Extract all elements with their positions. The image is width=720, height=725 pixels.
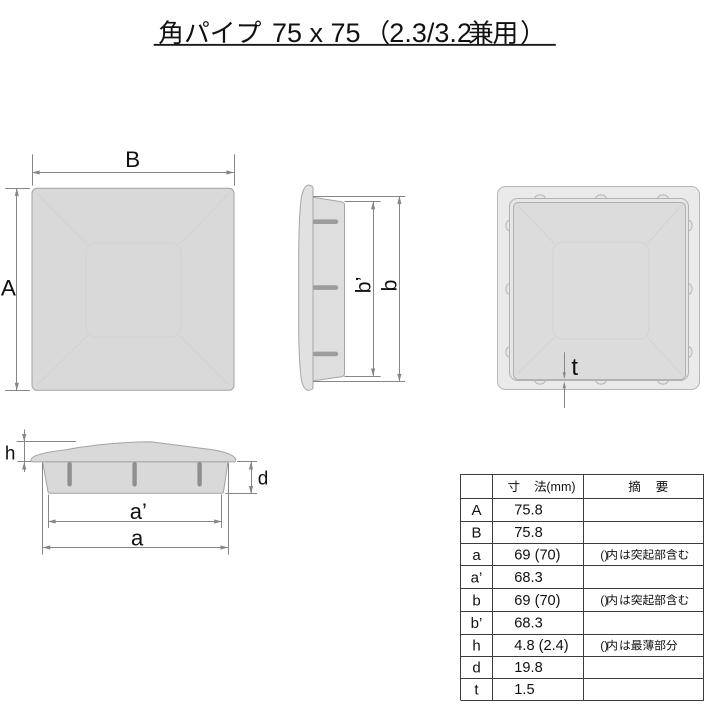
svg-text:68.3: 68.3 [514,616,542,632]
svg-text:69 (70): 69 (70) [514,548,560,564]
svg-text:a’: a’ [130,499,147,524]
svg-text:b: b [378,279,402,291]
svg-text:2.3/3.2: 2.3/3.2 [389,18,472,48]
svg-text:(): () [600,548,608,562]
svg-text:a: a [131,526,144,551]
svg-text:(): () [600,639,608,653]
svg-text:(): () [600,593,608,607]
svg-text:68.3: 68.3 [514,570,542,586]
svg-text:B: B [125,147,140,172]
svg-text:1.5: 1.5 [514,682,534,698]
svg-text:t: t [571,354,578,381]
svg-text:69 (70): 69 (70) [514,593,560,609]
svg-text:75 x 75: 75 x 75 [272,18,361,48]
svg-text:19.8: 19.8 [514,660,542,676]
svg-text:B: B [471,525,481,542]
svg-text:b: b [472,592,480,609]
svg-text:4.8 (2.4): 4.8 (2.4) [514,638,568,654]
svg-text:a: a [472,547,481,564]
svg-text:75.8: 75.8 [514,503,542,519]
svg-text:(mm): (mm) [546,480,575,494]
svg-text:b’: b’ [351,277,375,294]
svg-text:a’: a’ [471,570,483,587]
svg-text:A: A [471,502,481,519]
svg-text:h: h [5,443,16,464]
svg-text:d: d [472,660,480,677]
svg-text:h: h [472,638,480,655]
svg-text:b’: b’ [471,615,483,632]
svg-text:A: A [1,275,17,300]
svg-text:75.8: 75.8 [514,525,542,541]
svg-text:d: d [258,468,269,489]
